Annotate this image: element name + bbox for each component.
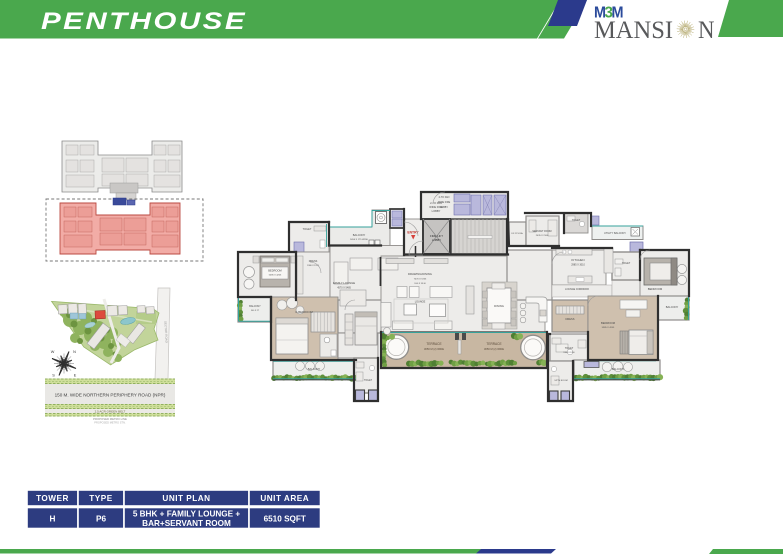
svg-text:H: H — [50, 515, 56, 524]
svg-text:5485 X 4265: 5485 X 4265 — [269, 275, 282, 277]
svg-text:UTILITY BALCONY: UTILITY BALCONY — [604, 232, 626, 235]
svg-text:TOILET: TOILET — [622, 262, 631, 265]
svg-text:PROPOSED METRO STN.: PROPOSED METRO STN. — [94, 420, 126, 424]
svg-text:5050 X 1T5 WIDE: 5050 X 1T5 WIDE — [350, 239, 368, 241]
svg-text:N: N — [698, 17, 715, 44]
svg-text:6510 SQFT: 6510 SQFT — [264, 515, 306, 524]
svg-text:5985 X 4265: 5985 X 4265 — [602, 327, 615, 329]
svg-text:TERRACE: TERRACE — [486, 342, 501, 346]
svg-text:LOBBY: LOBBY — [432, 238, 441, 242]
svg-text:LOUNGE: LOUNGE — [415, 301, 426, 304]
svg-text:E: E — [74, 374, 77, 378]
svg-text:SPTS ROOM: SPTS ROOM — [554, 380, 567, 382]
svg-text:PENTHOUSE: PENTHOUSE — [41, 8, 247, 35]
svg-text:4570 X 5485: 4570 X 5485 — [337, 287, 351, 290]
svg-text:LOBBY: LOBBY — [440, 206, 448, 209]
svg-text:WIDE FIRE: WIDE FIRE — [438, 201, 451, 204]
svg-text:F.F POOJA: F.F POOJA — [511, 232, 523, 235]
svg-text:TOWER: TOWER — [36, 494, 69, 503]
svg-text:BEDROOM: BEDROOM — [268, 269, 281, 273]
svg-text:DRESS: DRESS — [566, 317, 575, 321]
svg-text:BEDROOM: BEDROOM — [648, 287, 663, 291]
svg-text:7470 X 5745: 7470 X 5745 — [414, 279, 427, 281]
svg-text:24-6 X 18-10: 24-6 X 18-10 — [414, 283, 426, 285]
svg-text:UNIT AREA: UNIT AREA — [260, 494, 309, 503]
svg-text:2435 X 2100: 2435 X 2100 — [536, 235, 549, 237]
svg-text:LOUNGE CORRIDOR: LOUNGE CORRIDOR — [565, 288, 589, 291]
svg-text:S: S — [52, 374, 55, 378]
svg-text:2.5 ACR GREEN BELT: 2.5 ACR GREEN BELT — [95, 409, 126, 413]
svg-text:P6: P6 — [96, 515, 106, 524]
svg-text:PROPOSED METRO LINE: PROPOSED METRO LINE — [93, 417, 127, 421]
svg-text:TOILET: TOILET — [572, 219, 581, 222]
svg-text:TOILET: TOILET — [565, 347, 574, 350]
svg-text:FAMILY LOUNGE: FAMILY LOUNGE — [333, 281, 355, 285]
svg-text:TYPE: TYPE — [89, 494, 112, 503]
svg-text:BALCONY: BALCONY — [308, 367, 321, 371]
svg-text:5 BHK + FAMILY LOUNGE +: 5 BHK + FAMILY LOUNGE + — [133, 510, 241, 519]
svg-text:BALCONY: BALCONY — [612, 367, 625, 371]
svg-text:G.BEDROOM: G.BEDROOM — [295, 310, 313, 314]
svg-text:BALCONY: BALCONY — [353, 233, 366, 237]
svg-text:2-TO FAN: 2-TO FAN — [439, 196, 450, 199]
svg-text:3050 M (2) WIDE: 3050 M (2) WIDE — [424, 347, 444, 351]
svg-text:N: N — [73, 350, 76, 354]
svg-text:TERRACE: TERRACE — [426, 342, 441, 346]
svg-text:3050 M (2) WIDE: 3050 M (2) WIDE — [484, 347, 504, 351]
svg-text:1980 X 1200: 1980 X 1200 — [563, 352, 575, 354]
svg-text:SERVANT ROOM: SERVANT ROOM — [532, 230, 551, 233]
svg-text:TOILET: TOILET — [364, 380, 373, 382]
svg-text:BALCONY: BALCONY — [666, 305, 679, 309]
svg-text:DINING: DINING — [494, 304, 504, 308]
svg-text:900 X 2T: 900 X 2T — [251, 310, 260, 312]
svg-text:UNIT PLAN: UNIT PLAN — [162, 494, 210, 503]
svg-text:2985 X 3010: 2985 X 3010 — [571, 264, 585, 267]
svg-text:BEDROOM: BEDROOM — [601, 321, 616, 325]
svg-text:DRAWING/DINING: DRAWING/DINING — [408, 272, 432, 276]
svg-text:LOBBY: LOBBY — [432, 209, 441, 213]
svg-text:W: W — [51, 350, 55, 354]
svg-text:KITCHEN: KITCHEN — [571, 258, 584, 262]
svg-text:BAR+SERVANT ROOM: BAR+SERVANT ROOM — [142, 519, 231, 528]
svg-text:BALCONY: BALCONY — [249, 305, 261, 308]
svg-text:TOILET: TOILET — [303, 228, 312, 231]
svg-text:MANSI: MANSI — [594, 17, 673, 44]
svg-text:150 M. WIDE NORTHERN PERIPHERY: 150 M. WIDE NORTHERN PERIPHERY ROAD (NPR… — [55, 393, 166, 398]
